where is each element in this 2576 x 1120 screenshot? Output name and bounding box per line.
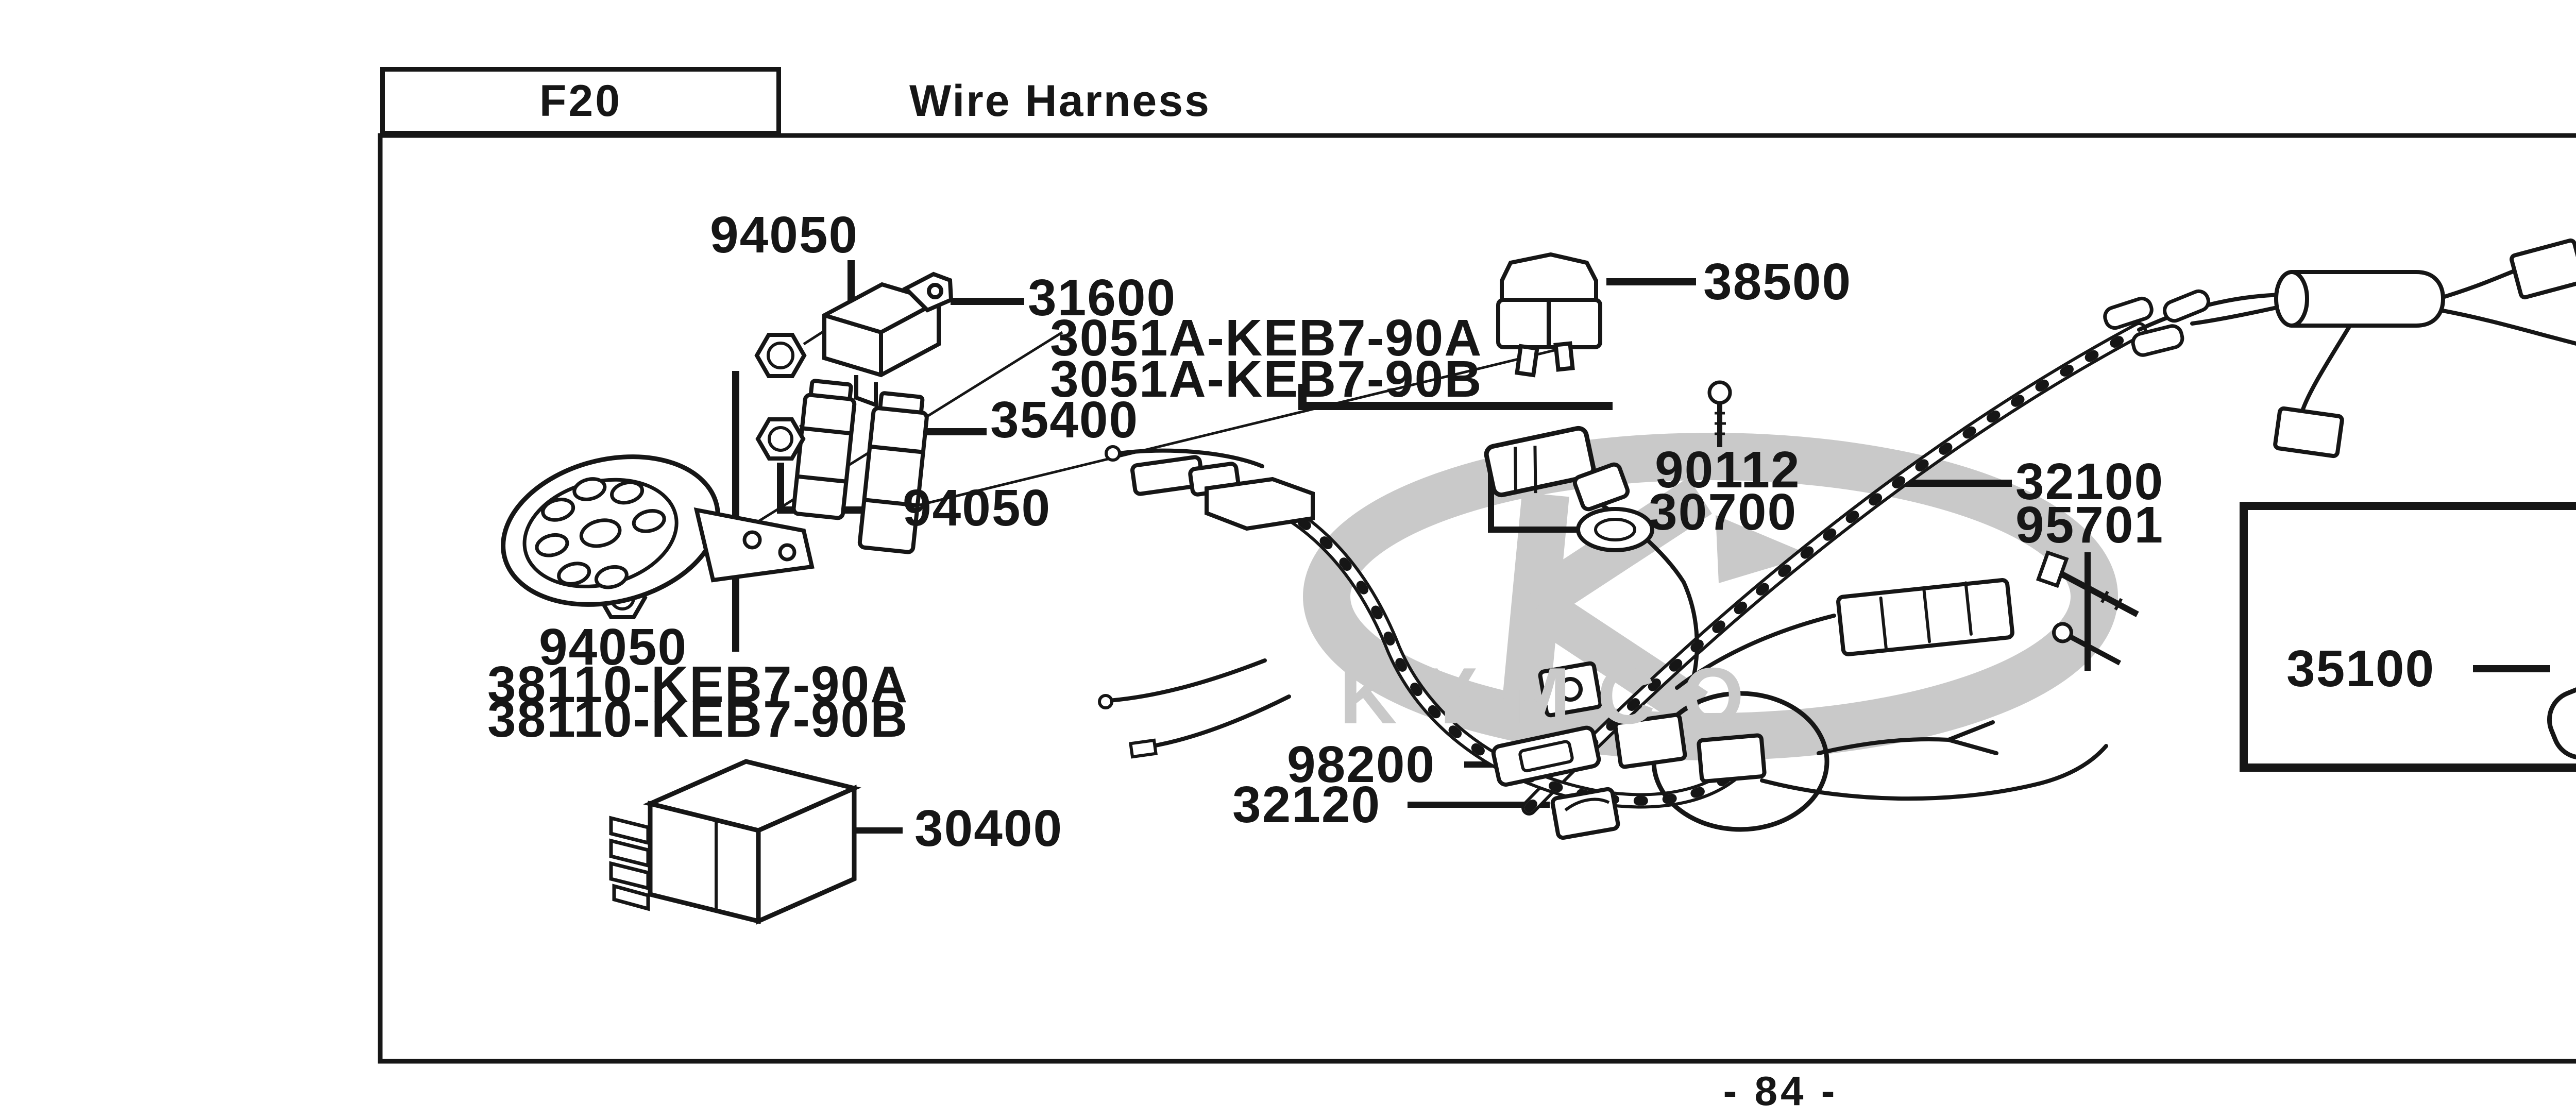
part-label-32120: 32120 [1232, 779, 1381, 830]
part-label-30700: 30700 [1649, 486, 1797, 538]
part-label-38500: 38500 [1703, 256, 1852, 308]
page-title: Wire Harness [909, 67, 1211, 135]
part-label-30400: 30400 [914, 803, 1063, 854]
part-label-38110-keb7-90b: 38110-KEB7-90B [487, 693, 908, 745]
part-label-94050-top: 94050 [710, 209, 858, 261]
ignition-switch-icon [2541, 566, 2576, 780]
part-label-95701: 95701 [2015, 499, 2164, 551]
part-label-35100: 35100 [2286, 643, 2435, 694]
lock-set-box [2244, 506, 2576, 768]
part-label-94050-mid: 94050 [903, 482, 1051, 534]
diagram-artwork [0, 0, 2576, 1120]
kymco-watermark-text: KYMCO [1340, 650, 1771, 742]
relay-38500-icon [1498, 254, 1600, 375]
cdi-icon [611, 761, 854, 921]
section-code-box: F20 [380, 67, 781, 135]
catalog-page: KYMCO F20 Wire Harness 94050 31600 3051A… [0, 0, 2576, 1120]
page-number: - 84 - [0, 1067, 2576, 1115]
horn-icon [487, 435, 812, 626]
section-code: F20 [539, 76, 622, 127]
part-label-35400: 35400 [990, 394, 1139, 446]
